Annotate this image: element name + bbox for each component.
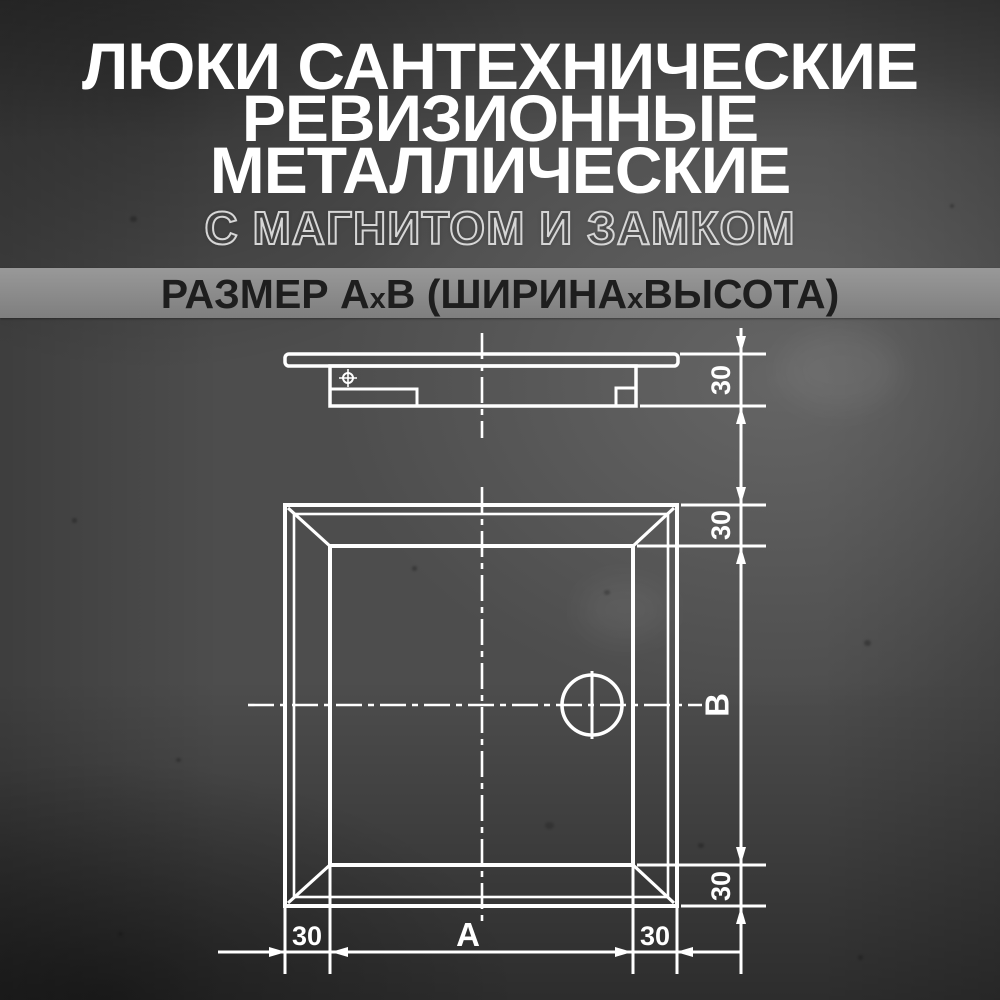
dim-label-top-frame-30: 30: [706, 510, 736, 540]
arrowhead: [736, 407, 746, 424]
dim-label-left-frame-30: 30: [292, 921, 322, 951]
product-promo-image: ЛЮКИ САНТЕХНИЧЕСКИЕ РЕВИЗИОННЫЕ МЕТАЛЛИЧ…: [0, 0, 1000, 1000]
dim-label-right-frame-30: 30: [640, 921, 670, 951]
arrowhead: [736, 336, 746, 353]
side-view-lock-block: [616, 388, 636, 406]
side-view-magnet-bar: [330, 389, 417, 406]
arrowhead: [736, 847, 746, 864]
technical-drawing-svg: 30 30 В 30 30 А 30: [0, 0, 1000, 1000]
right-dimension-chain: [637, 328, 766, 974]
side-view: [285, 333, 678, 438]
arrowhead: [676, 947, 693, 957]
arrowhead: [331, 947, 348, 957]
dim-label-width-A: А: [456, 916, 480, 953]
dim-label-height-B: В: [699, 693, 736, 717]
dim-label-bottom-frame-30: 30: [706, 871, 736, 901]
arrowhead: [615, 947, 632, 957]
arrowhead: [736, 487, 746, 504]
screw-target-icon: [339, 369, 357, 387]
arrowhead: [269, 947, 286, 957]
arrowhead: [736, 907, 746, 924]
front-view: [248, 487, 702, 921]
arrowhead: [736, 547, 746, 564]
dim-label-side-depth-30: 30: [706, 365, 736, 395]
